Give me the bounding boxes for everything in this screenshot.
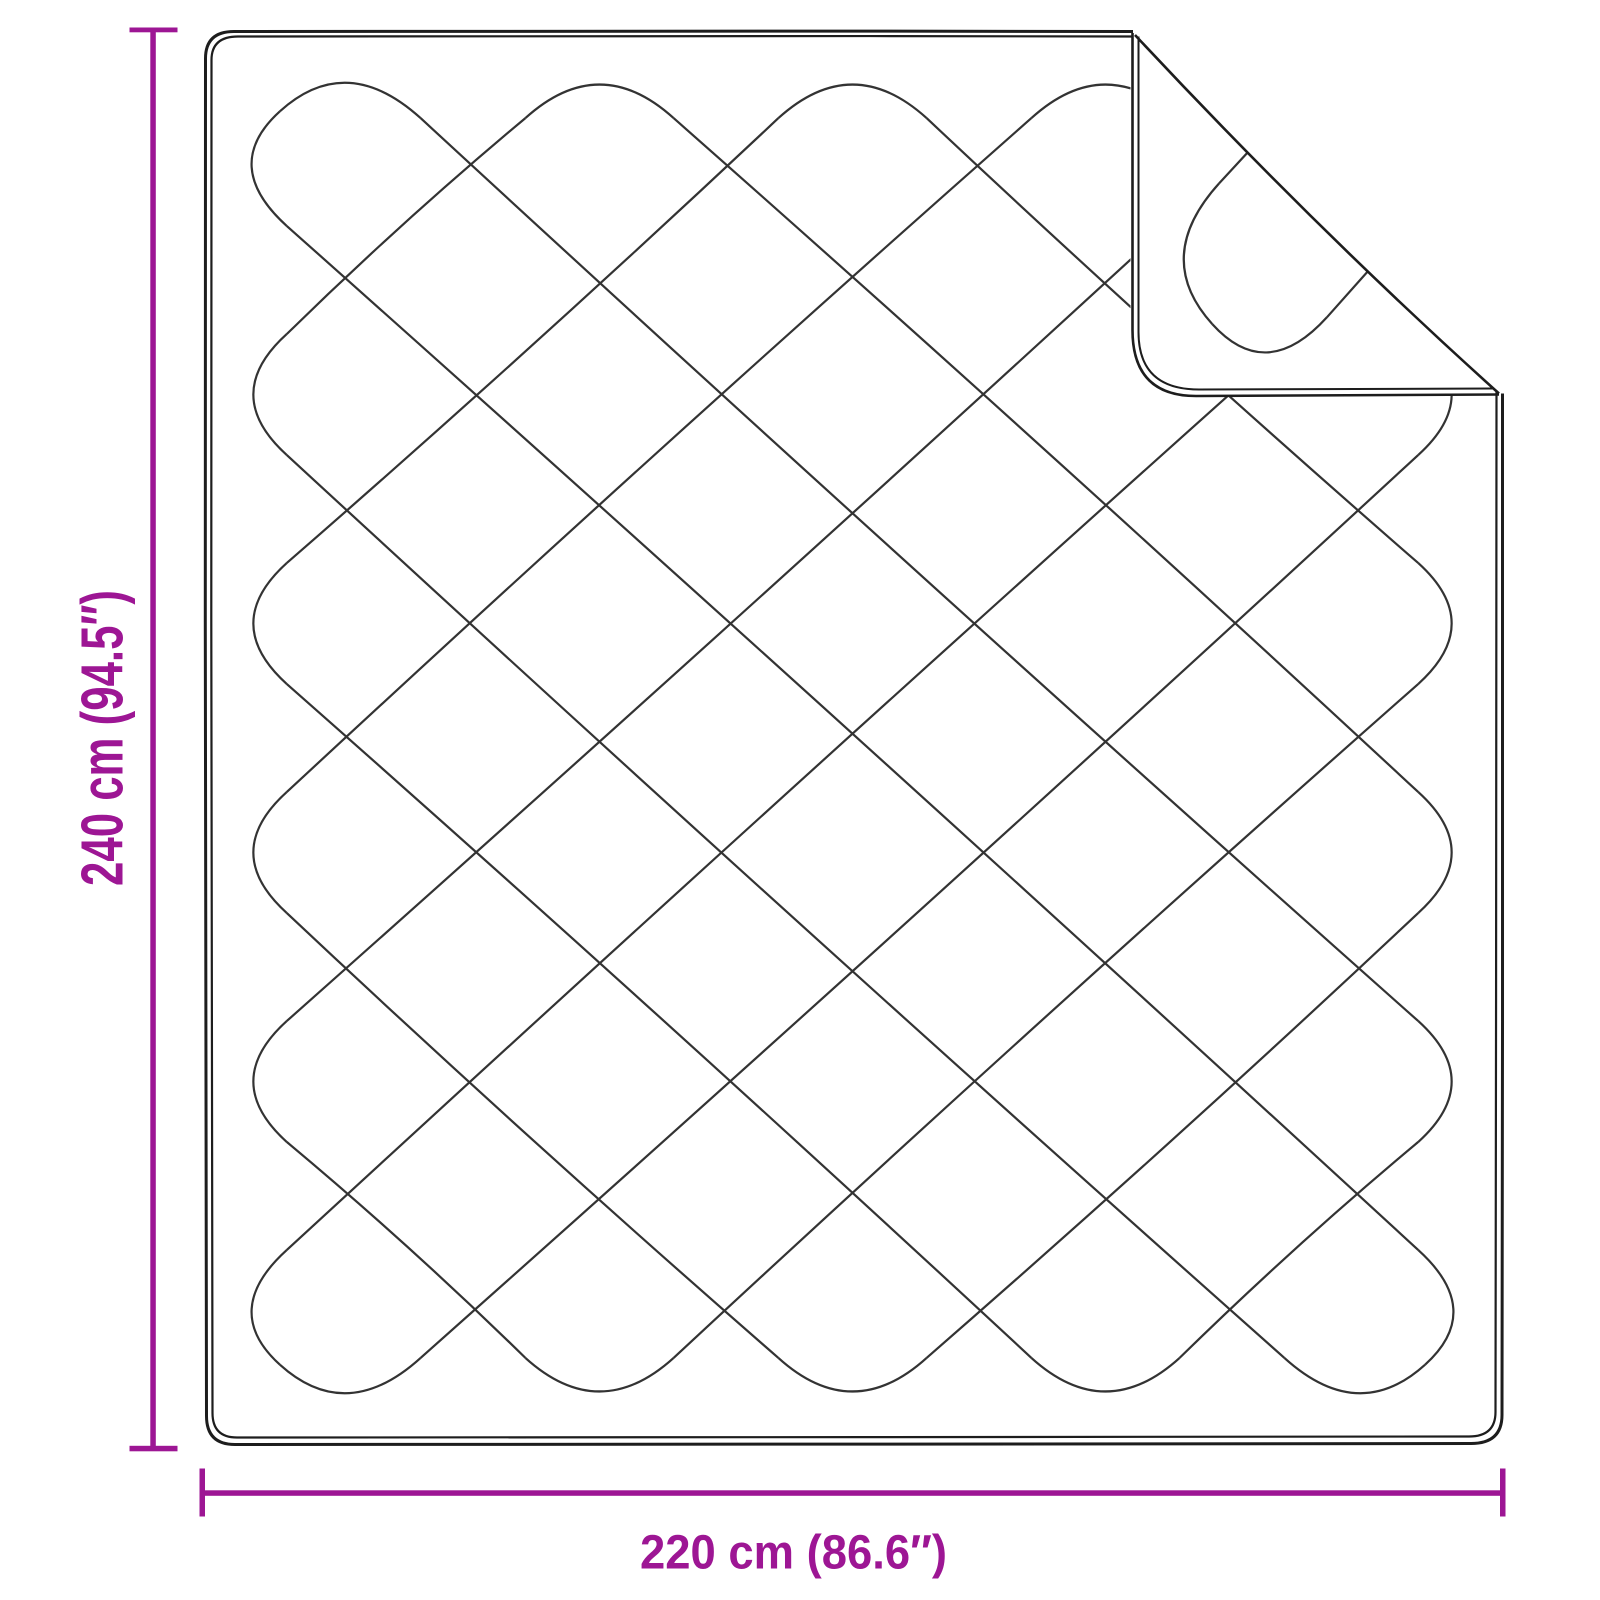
svg-text:220 cm (86.6″): 220 cm (86.6″) (640, 1527, 947, 1580)
svg-text:240 cm (94.5″): 240 cm (94.5″) (69, 590, 136, 886)
